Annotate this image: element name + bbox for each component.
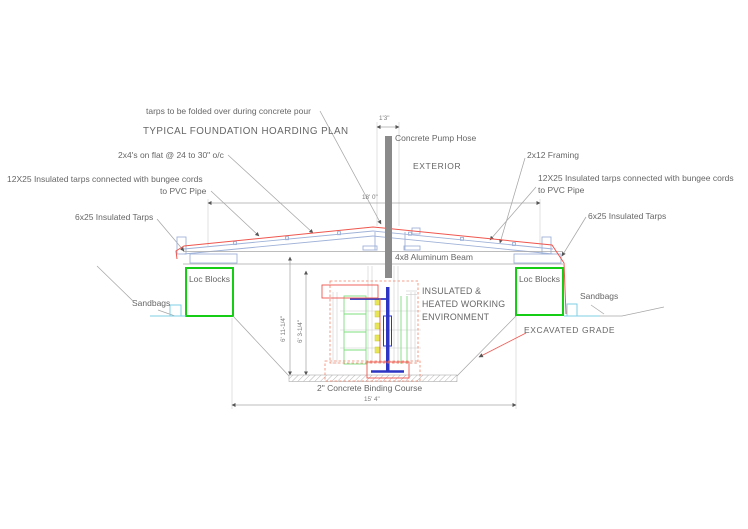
leader-tarps6-left (157, 219, 184, 251)
leader-sandbags-left2 (158, 310, 175, 316)
dim-hose-offset: 1'3" (379, 114, 389, 124)
excavated-grade-label: EXCAVATED GRADE (524, 325, 615, 335)
pump-hose-label: Concrete Pump Hose (395, 133, 476, 143)
tarp-fold-note: tarps to be folded over during concrete … (146, 106, 311, 116)
leader-studs (228, 155, 313, 233)
rafter-left-top (184, 231, 373, 249)
leader-lines (97, 111, 664, 357)
loc-blocks-right-label: Loc Blocks (516, 274, 563, 284)
environment-label-3: ENVIRONMENT (422, 312, 489, 322)
sandbags-right-label: Sandbags (580, 291, 618, 301)
sandbag-left (170, 305, 181, 316)
dim-excavation-width: 15' 4" (364, 395, 380, 405)
sandbag-right (567, 304, 577, 316)
tarp-line (176, 227, 566, 314)
concrete-pump-hose (385, 136, 392, 278)
tarps6-right-label: 6x25 Insulated Tarps (588, 211, 666, 221)
leader-framing (500, 158, 525, 243)
dim-depth-outer: 6' 11-1/4" (279, 316, 289, 342)
environment-label-1: INSULATED & (422, 286, 481, 296)
ground-line-right-far (598, 307, 664, 316)
foundation-hoarding-drawing: tarps to be folded over during concrete … (0, 0, 748, 529)
tarps12-left-line1: 12X25 Insulated tarps connected with bun… (7, 174, 203, 184)
dimension-lines (208, 122, 540, 409)
leader-sandbags-right (591, 305, 604, 314)
drawing-title: TYPICAL FOUNDATION HOARDING PLAN (143, 127, 348, 137)
framing-2x12-label: 2x12 Framing (527, 150, 579, 160)
drawing-canvas (0, 0, 748, 529)
leader-sandbags-left (97, 266, 133, 301)
studs-note: 2x4's on flat @ 24 to 30" o/c (118, 150, 224, 160)
roof-structure (176, 227, 566, 314)
plate-left (190, 254, 237, 263)
binding-course-label: 2" Concrete Binding Course (317, 383, 422, 393)
tarps12-right-line2: to PVC Pipe (538, 185, 584, 195)
dim-hoarding-span: 18' 0" (362, 193, 378, 203)
leader-excavated-grade (479, 333, 526, 357)
plate-right (514, 254, 561, 263)
foundation-detail (322, 266, 421, 381)
dim-depth-inner: 6' 3-1/4" (296, 320, 306, 343)
beam-label: 4x8 Aluminum Beam (395, 252, 473, 262)
leader-tarps12-right (490, 187, 536, 240)
tarps6-left-label: 6x25 Insulated Tarps (75, 212, 153, 222)
sandbags-left-label: Sandbags (132, 298, 170, 308)
loc-blocks-left-label: Loc Blocks (186, 274, 233, 284)
slope-right (457, 316, 516, 376)
leader-tarps6-right (562, 217, 586, 256)
tarps12-left-line2: to PVC Pipe (160, 186, 206, 196)
leader-tarps12-left (211, 191, 259, 236)
tarps12-right-line1: 12X25 Insulated tarps connected with bun… (538, 173, 734, 183)
exterior-label: EXTERIOR (413, 161, 461, 171)
environment-label-2: HEATED WORKING (422, 299, 505, 309)
